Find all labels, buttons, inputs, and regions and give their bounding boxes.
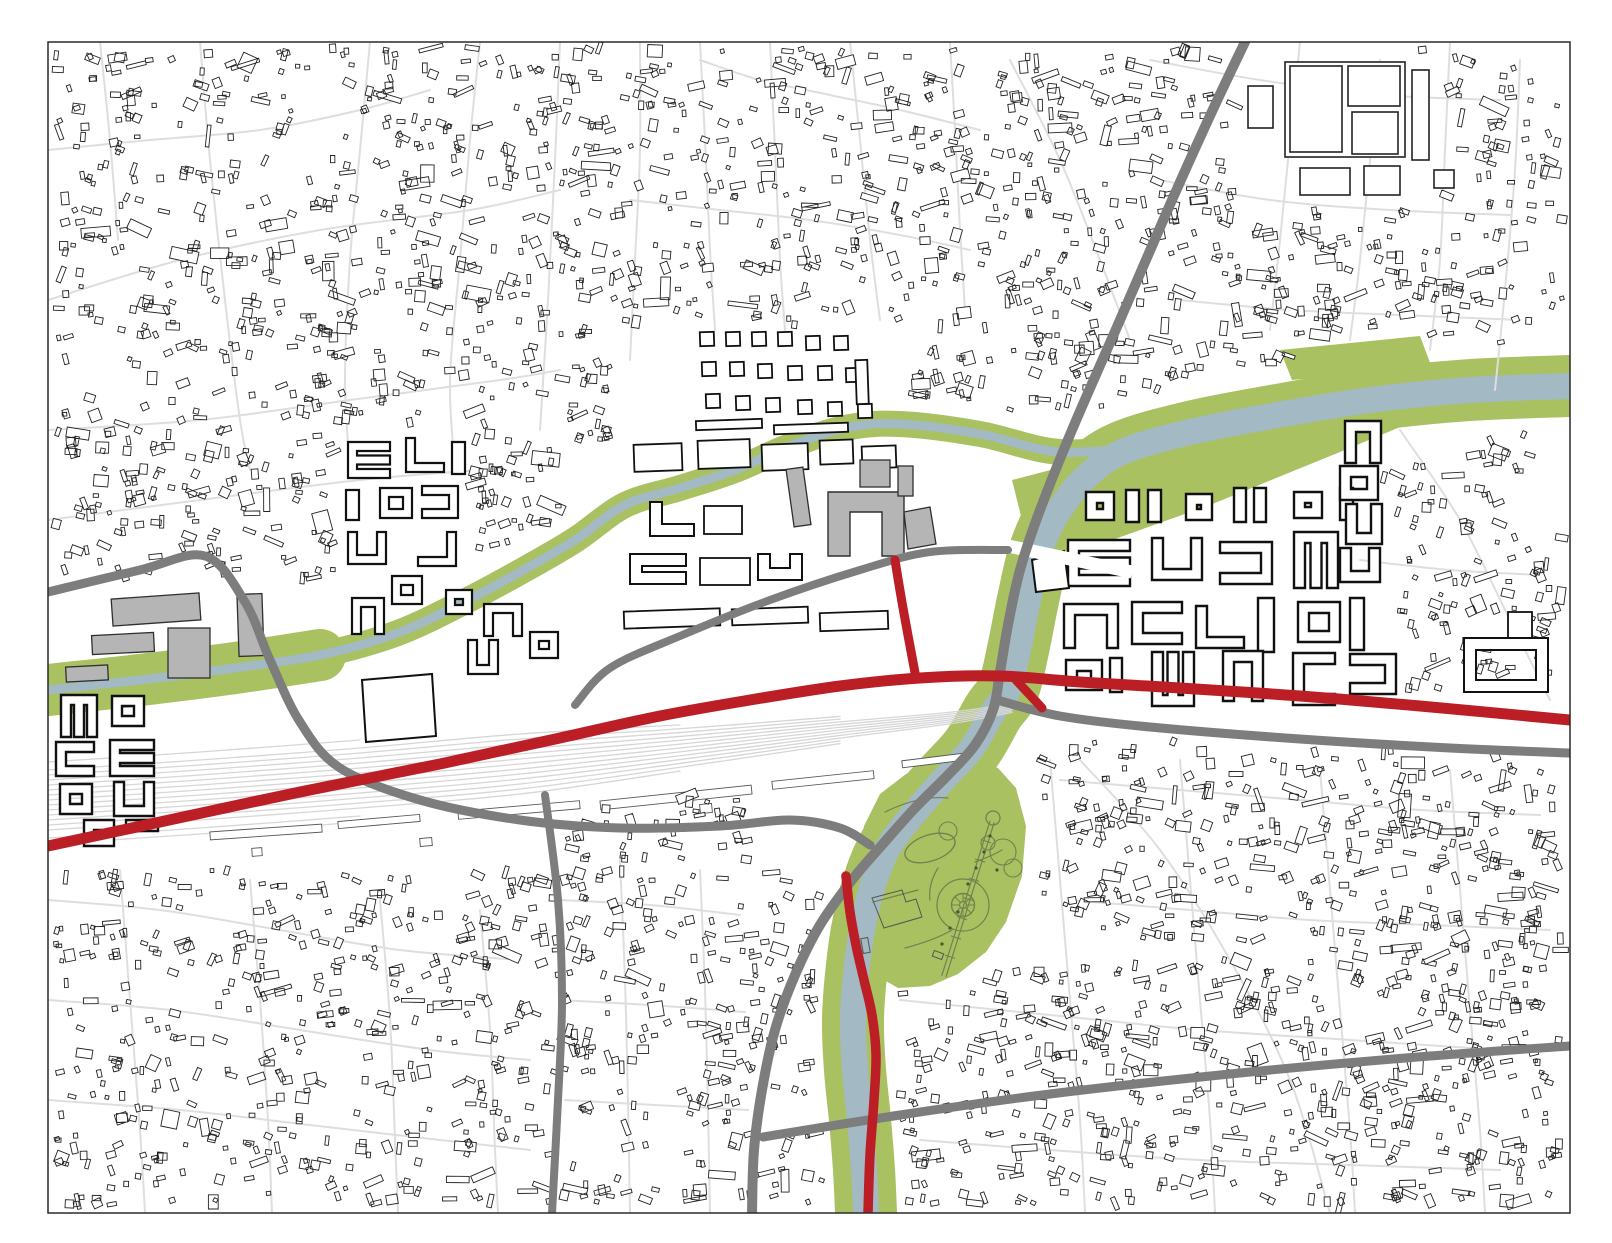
map-canvas xyxy=(0,0,1612,1243)
station-buildings xyxy=(210,753,964,856)
map-layers xyxy=(48,42,1570,1215)
city-map xyxy=(0,0,1612,1243)
